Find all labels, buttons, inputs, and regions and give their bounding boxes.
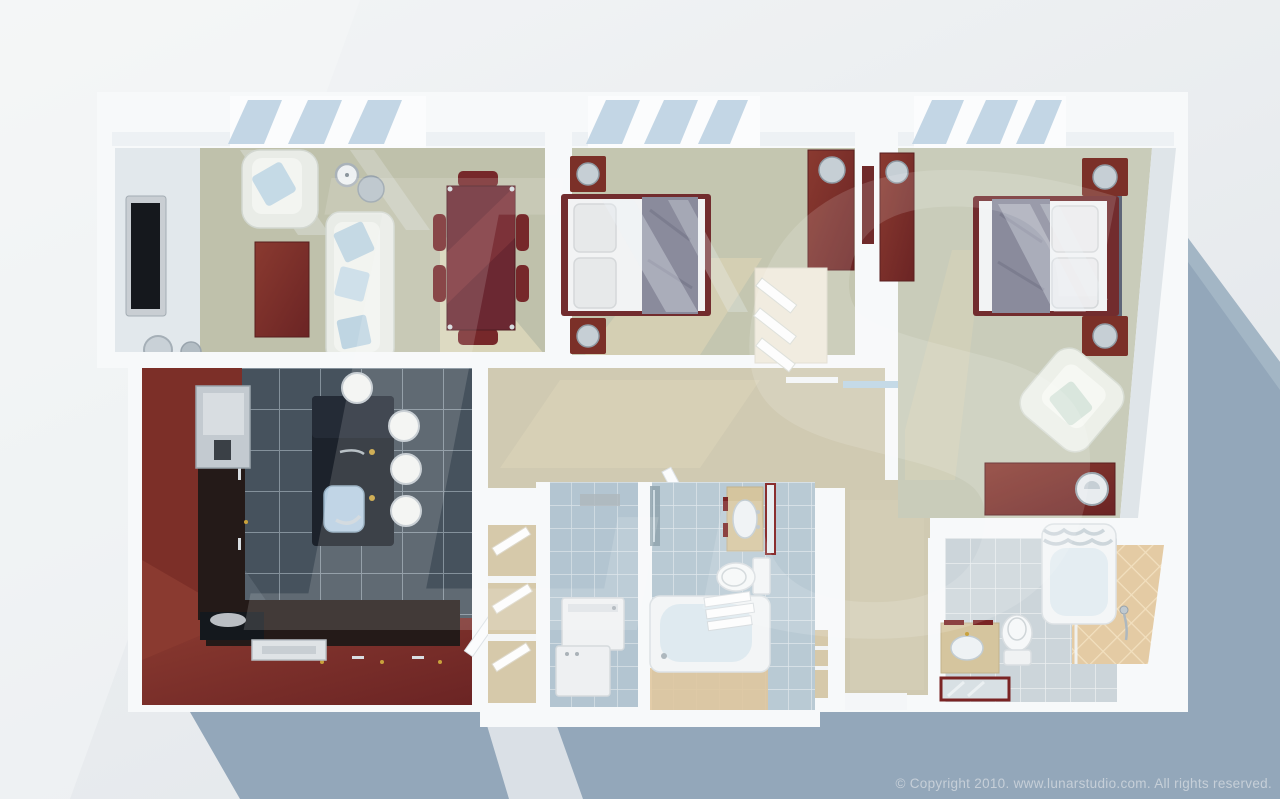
refrigerator-icon	[196, 386, 250, 468]
studio-watermark: LS	[239, 49, 1142, 777]
wall-mounted-tv-icon	[126, 196, 166, 316]
floorplan-canvas: LS © Copyright 2010. www.lunarstudio.com…	[0, 0, 1280, 799]
cooktop-icon	[200, 612, 264, 640]
copyright-text: © Copyright 2010. www.lunarstudio.com. A…	[895, 776, 1272, 791]
floorplan-rendering: LS © Copyright 2010. www.lunarstudio.com…	[0, 0, 1280, 799]
